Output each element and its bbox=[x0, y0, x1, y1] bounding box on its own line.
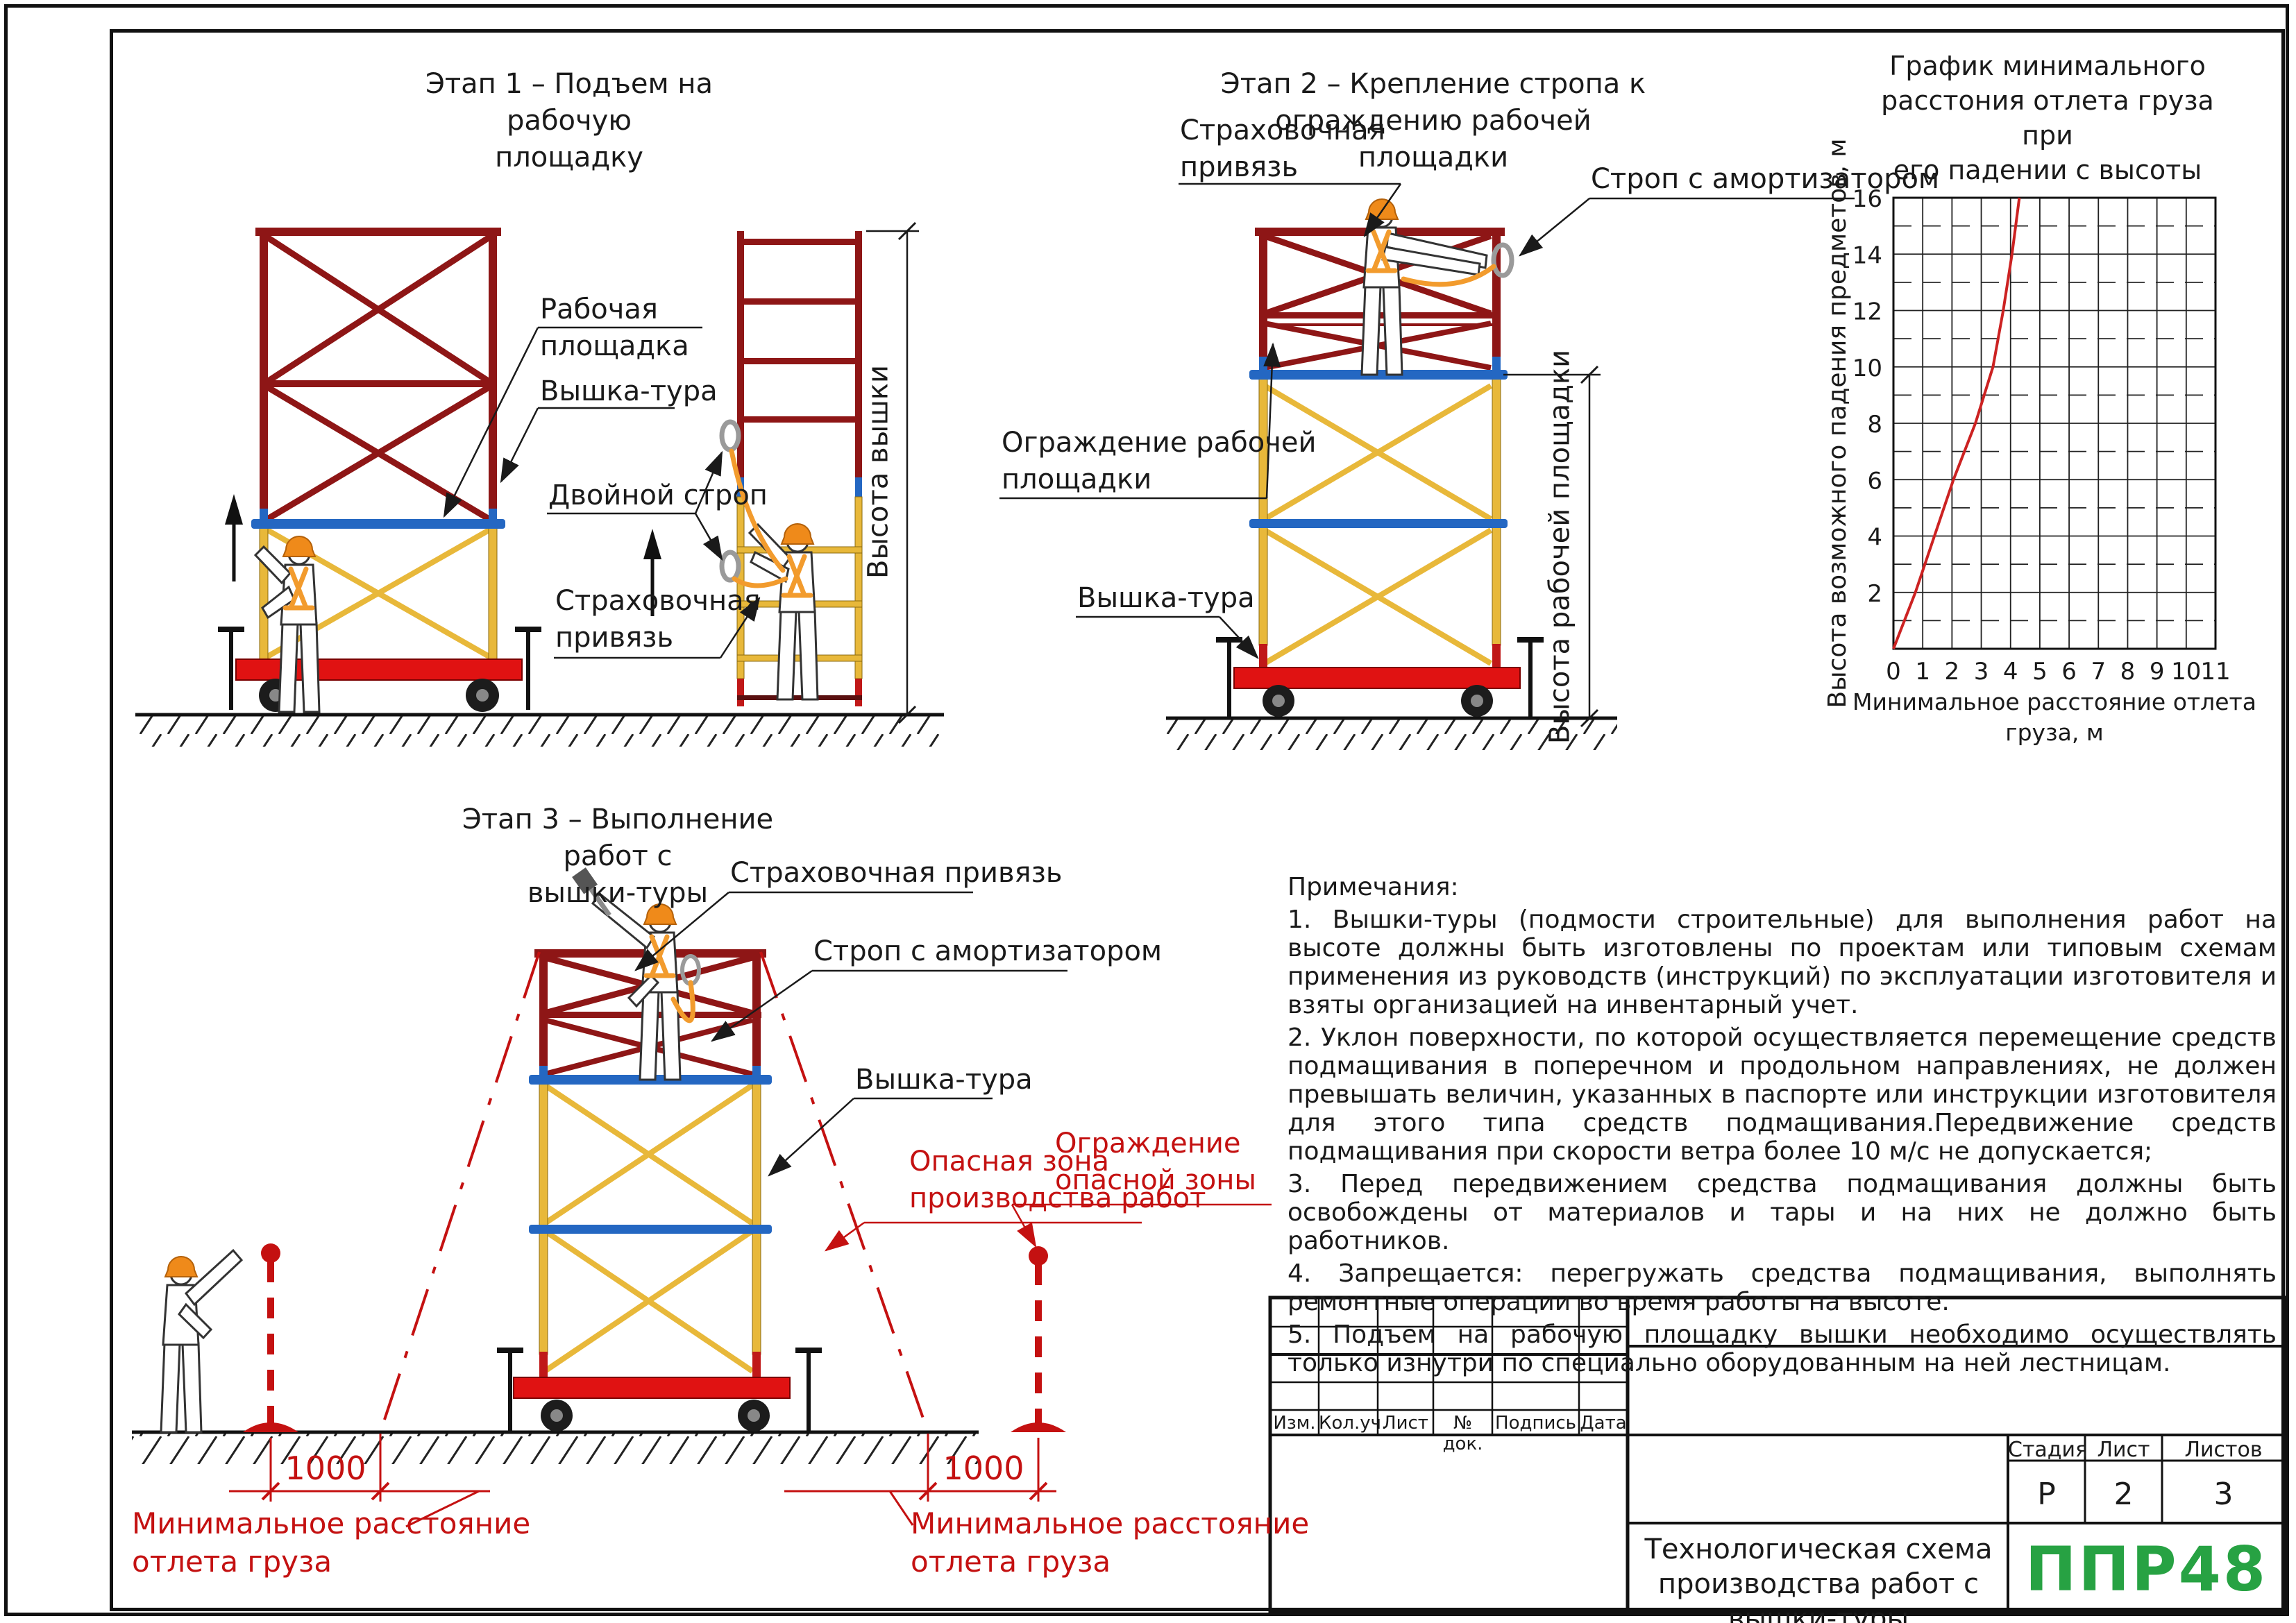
stage1-tower bbox=[218, 228, 541, 712]
tb-header-ndok: № док. bbox=[1433, 1413, 1492, 1454]
label-safety-harness-stage1: Страховочная привязь bbox=[555, 583, 761, 656]
note-item-2: 2. Уклон поверхности, по которой осущест… bbox=[1288, 1023, 2277, 1166]
chart-y-tick-label: 10 bbox=[1852, 355, 1882, 382]
worker-observer-stage3 bbox=[161, 1250, 242, 1432]
stage3-tower bbox=[497, 949, 822, 1431]
chart-title: График минимального расстония отлета гру… bbox=[1867, 49, 2228, 188]
chart-x-tick-label: 10 bbox=[2171, 658, 2201, 686]
ground-stage3 bbox=[132, 1432, 979, 1464]
chart-x-tick-label: 9 bbox=[2150, 658, 2165, 686]
tb-header-izm: Изм. bbox=[1270, 1413, 1319, 1434]
stage1-title: Этап 1 – Подъем на рабочую площадку bbox=[375, 66, 763, 176]
carabiner-lower bbox=[722, 552, 738, 580]
drawing-sheet: 24681012141601234567891011 Этап 1 – Подъ… bbox=[0, 0, 2296, 1623]
label-tower-stage2: Вышка-тура bbox=[1077, 580, 1255, 617]
danger-fence-marker-right bbox=[1011, 1246, 1066, 1432]
tb-logo-ppr48: ППР48 bbox=[2008, 1539, 2285, 1600]
label-safety-harness-stage3: Страховочная привязь bbox=[730, 855, 1062, 892]
up-arrow-left bbox=[225, 494, 243, 581]
note-item-1: 1. Вышки-туры (подмости строительные) дл… bbox=[1288, 906, 2277, 1019]
label-safety-harness-stage2: Страховочная привязь bbox=[1180, 112, 1385, 186]
chart-x-tick-label: 4 bbox=[2003, 658, 2018, 686]
carabiner-upper bbox=[722, 422, 738, 450]
dim-tower-height: Высота вышки bbox=[861, 365, 897, 579]
chart-x-tick-label: 11 bbox=[2200, 658, 2230, 686]
notes-heading: Примечания: bbox=[1288, 873, 2277, 901]
dim-1000-left: 1000 bbox=[277, 1447, 374, 1490]
chart-x-axis-label: Минимальное расстояние отлета груза, м bbox=[1818, 687, 2290, 747]
ground-stage1 bbox=[135, 715, 944, 747]
label-min-distance-left: Минимальное расстояние отлета груза bbox=[132, 1504, 530, 1581]
note-item-4: 4. Запрещается: перегружать средства под… bbox=[1288, 1259, 2277, 1316]
label-tower-stage3: Вышка-тура bbox=[855, 1062, 1033, 1098]
tb-header-sheet: Лист bbox=[2085, 1438, 2162, 1462]
label-danger-fence: Ограждение опасной зоны bbox=[1055, 1125, 1256, 1199]
tb-header-podpis: Подпись bbox=[1492, 1413, 1579, 1434]
note-item-5: 5. Подъем на рабочую площадку вышки необ… bbox=[1288, 1320, 2277, 1377]
chart-x-tick-label: 2 bbox=[1945, 658, 1960, 686]
tb-value-sheet: 2 bbox=[2085, 1477, 2162, 1512]
tb-header-data: Дата bbox=[1579, 1413, 1628, 1434]
tb-header-sheets: Листов bbox=[2162, 1438, 2285, 1462]
chart-y-tick-label: 4 bbox=[1867, 524, 1882, 552]
danger-fence-marker-left bbox=[243, 1243, 298, 1432]
chart-x-tick-label: 1 bbox=[1915, 658, 1930, 686]
label-min-distance-right: Минимальное расстояние отлета груза bbox=[911, 1504, 1309, 1581]
tb-header-kol: Кол.уч. bbox=[1319, 1413, 1378, 1434]
chart-x-tick-label: 3 bbox=[1974, 658, 1989, 686]
chart-y-tick-label: 14 bbox=[1852, 241, 1882, 269]
dim-platform-height: Высота рабочей площадки bbox=[1542, 350, 1579, 744]
label-platform-guard: Ограждение рабочей площадки bbox=[1002, 425, 1316, 498]
chart-x-tick-label: 0 bbox=[1886, 658, 1901, 686]
chart-y-axis-label: Высота возможного падения предметов, м bbox=[1821, 138, 1855, 708]
tb-value-sheets: 3 bbox=[2162, 1477, 2285, 1512]
chart-y-tick-label: 8 bbox=[1867, 411, 1882, 439]
dim-1000-right: 1000 bbox=[935, 1447, 1032, 1490]
fall-distance-chart: 24681012141601234567891011 bbox=[1852, 185, 2231, 686]
label-double-sling: Двойной строп bbox=[548, 477, 768, 514]
label-sling-stage3: Строп с амортизатором bbox=[813, 933, 1162, 970]
chart-y-tick-label: 2 bbox=[1867, 580, 1882, 608]
chart-x-tick-label: 7 bbox=[2091, 658, 2106, 686]
label-tower-stage1: Вышка-тура bbox=[540, 373, 718, 410]
chart-y-tick-label: 12 bbox=[1852, 298, 1882, 326]
chart-x-tick-label: 5 bbox=[2032, 658, 2048, 686]
label-work-platform: Рабочая площадка bbox=[540, 291, 689, 365]
chart-y-tick-label: 6 bbox=[1867, 467, 1882, 495]
tb-header-list: Лист bbox=[1378, 1413, 1433, 1434]
chart-x-tick-label: 6 bbox=[2061, 658, 2077, 686]
tb-value-stadia: Р bbox=[2008, 1477, 2085, 1512]
tb-header-stadia: Стадия bbox=[2008, 1438, 2085, 1462]
chart-x-tick-label: 8 bbox=[2120, 658, 2136, 686]
tb-doc-title: Технологическая схема производства работ… bbox=[1638, 1532, 1999, 1623]
notes-block: Примечания: 1. Вышки-туры (подмости стро… bbox=[1288, 873, 2277, 1382]
note-item-3: 3. Перед передвижением средства подмащив… bbox=[1288, 1170, 2277, 1255]
